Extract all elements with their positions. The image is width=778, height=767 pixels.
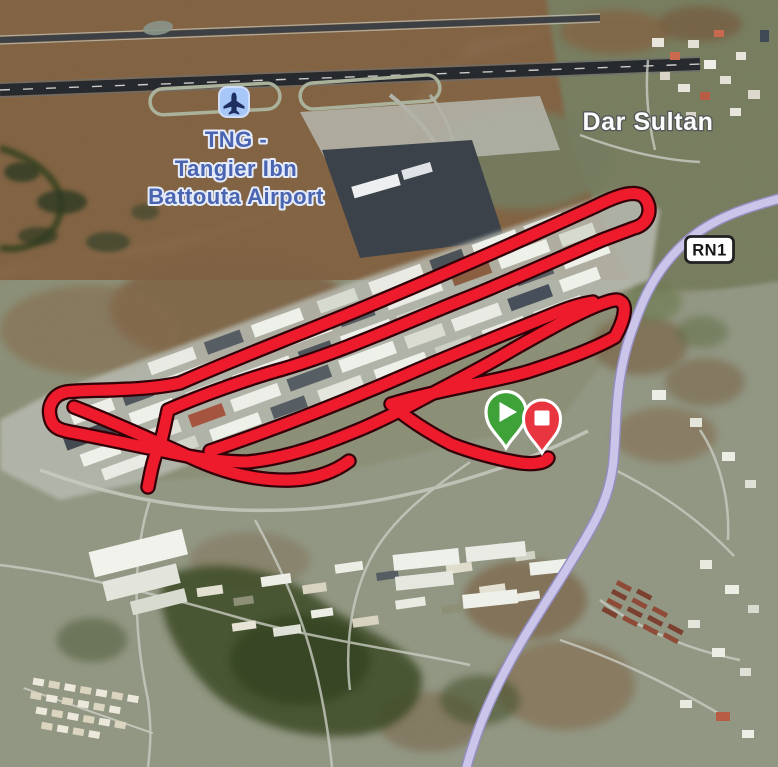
airport-label-line1: TNG - — [205, 127, 267, 152]
airport-label-line2: Tangier Ibn — [175, 156, 297, 181]
airport-label-line3: Battouta Airport — [148, 184, 324, 209]
stop-icon — [535, 411, 550, 426]
place-label[interactable]: Dar Sultan — [582, 108, 713, 136]
map-canvas[interactable]: TNG - Tangier Ibn Battouta Airport Dar S… — [0, 0, 778, 767]
road-badge: RN1 — [686, 237, 734, 263]
road-badge-text: RN1 — [692, 242, 727, 260]
